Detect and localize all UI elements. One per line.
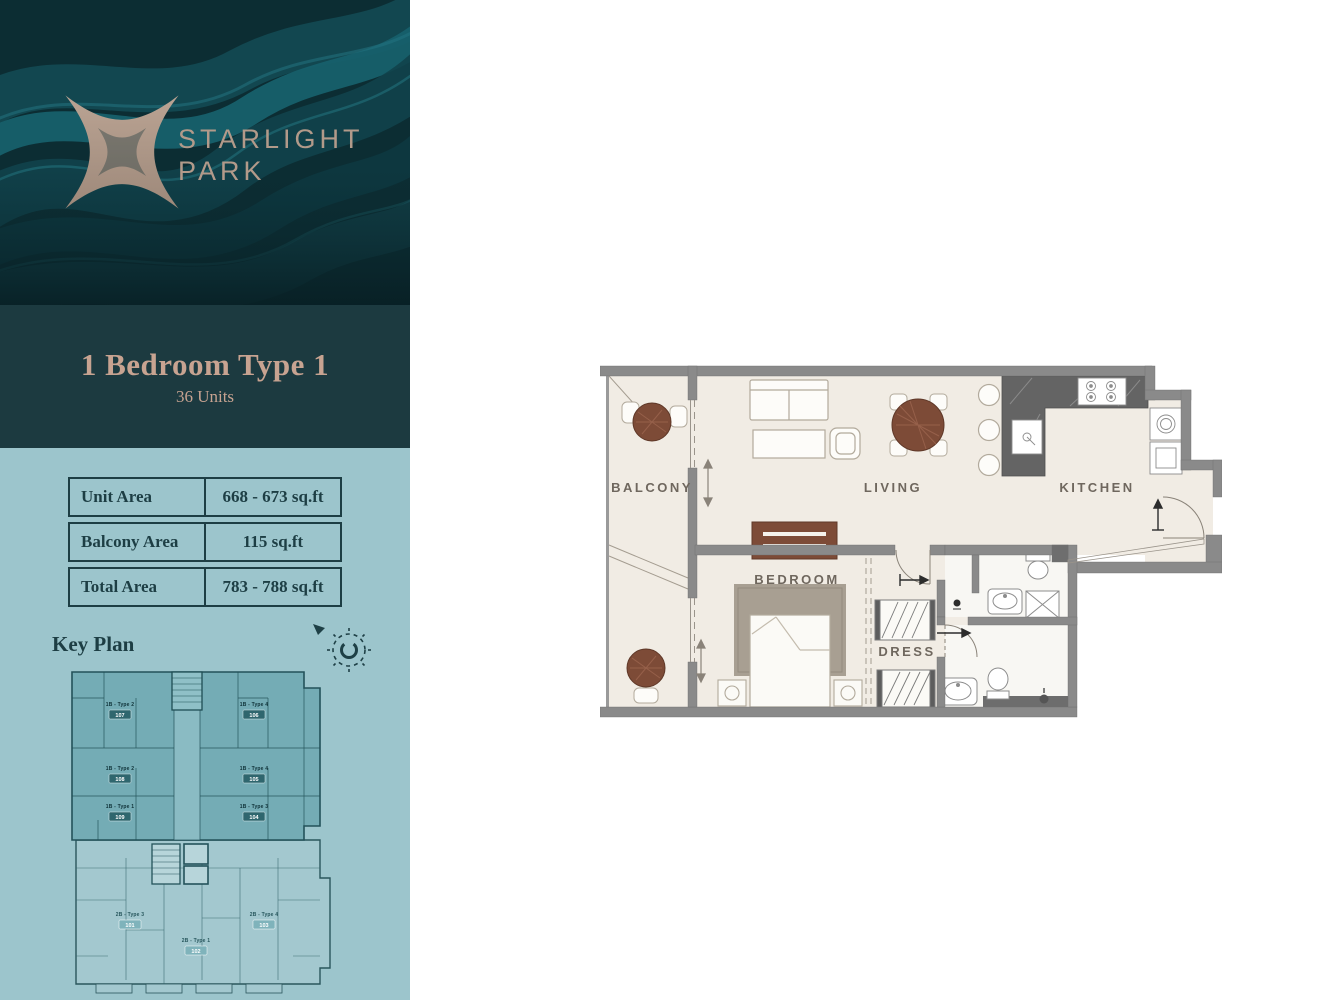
room-label-kitchen: KITCHEN — [1059, 480, 1134, 495]
toilet-tank — [987, 691, 1009, 699]
unit-type-label: 1B - Type 2 — [106, 702, 135, 708]
unit-type-label: 1B - Type 3 — [240, 804, 269, 810]
unit-number: 107 — [115, 713, 124, 719]
toilet-bowl — [988, 668, 1008, 690]
floor-plan-drawing: BALCONY LIVING KITCHEN BEDROOM DRESS — [600, 362, 1222, 722]
dining-table — [890, 394, 947, 456]
table-row: Total Area 783 - 788 sq.ft — [68, 567, 342, 607]
unit-count: 36 Units — [176, 387, 234, 407]
unit-type-label: 1B - Type 4 — [240, 766, 269, 772]
coffee-table — [753, 430, 825, 458]
area-row-value: 783 - 788 sq.ft — [206, 569, 340, 605]
area-row-label: Unit Area — [70, 479, 206, 515]
unit-number: 105 — [249, 777, 258, 783]
bar-stools — [979, 385, 1000, 476]
page-title: 1 Bedroom Type 1 — [81, 347, 329, 383]
key-plan-drawing: 1B - Type 2 107 1B - Type 4 106 1B - Typ… — [68, 668, 338, 1000]
kitchen-sink — [1012, 420, 1042, 454]
area-row-value: 115 sq.ft — [206, 524, 340, 560]
area-row-value: 668 - 673 sq.ft — [206, 479, 340, 515]
hero-banner: STARLIGHT PARK — [0, 0, 410, 305]
unit-type-label: 2B - Type 4 — [250, 912, 279, 918]
unit-type-label: 1B - Type 2 — [106, 766, 135, 772]
sofa — [750, 380, 828, 420]
unit-number: 101 — [125, 923, 134, 929]
unit-type-label: 1B - Type 4 — [240, 702, 269, 708]
unit-type-label: 2B - Type 1 — [182, 938, 211, 944]
unit-number: 106 — [249, 713, 258, 719]
unit-number: 108 — [115, 777, 124, 783]
room-label-balcony: BALCONY — [611, 480, 693, 495]
silk-wave-art: STARLIGHT PARK — [0, 0, 410, 305]
area-table: Unit Area 668 - 673 sq.ft Balcony Area 1… — [68, 477, 342, 612]
toilet-bowl — [1028, 561, 1048, 579]
unit-type-label: 1B - Type 1 — [106, 804, 135, 810]
key-plan-heading: Key Plan — [52, 632, 134, 657]
armchair — [830, 428, 860, 459]
area-row-label: Balcony Area — [70, 524, 206, 560]
brand-name-line1: STARLIGHT — [178, 124, 364, 154]
unit-number: 109 — [115, 815, 124, 821]
unit-number: 102 — [191, 949, 200, 955]
unit-header-panel: 1 Bedroom Type 1 36 Units — [0, 305, 410, 448]
area-row-label: Total Area — [70, 569, 206, 605]
key-plan-core-lower — [152, 844, 208, 884]
unit-type-label: 2B - Type 3 — [116, 912, 145, 918]
sidebar: STARLIGHT PARK 1 Bedroom Type 1 36 Units… — [0, 0, 410, 1000]
floor-drain — [954, 600, 961, 607]
unit-number: 103 — [259, 923, 268, 929]
brand-name-line2: PARK — [178, 156, 266, 186]
room-label-dress: DRESS — [878, 644, 935, 659]
room-label-living: LIVING — [864, 480, 922, 495]
unit-number: 104 — [249, 815, 259, 821]
shower-head — [1040, 695, 1049, 704]
table-row: Unit Area 668 - 673 sq.ft — [68, 477, 342, 517]
room-label-bedroom: BEDROOM — [754, 572, 839, 587]
bed — [750, 615, 830, 707]
stove — [1078, 378, 1126, 405]
table-row: Balcony Area 115 sq.ft — [68, 522, 342, 562]
